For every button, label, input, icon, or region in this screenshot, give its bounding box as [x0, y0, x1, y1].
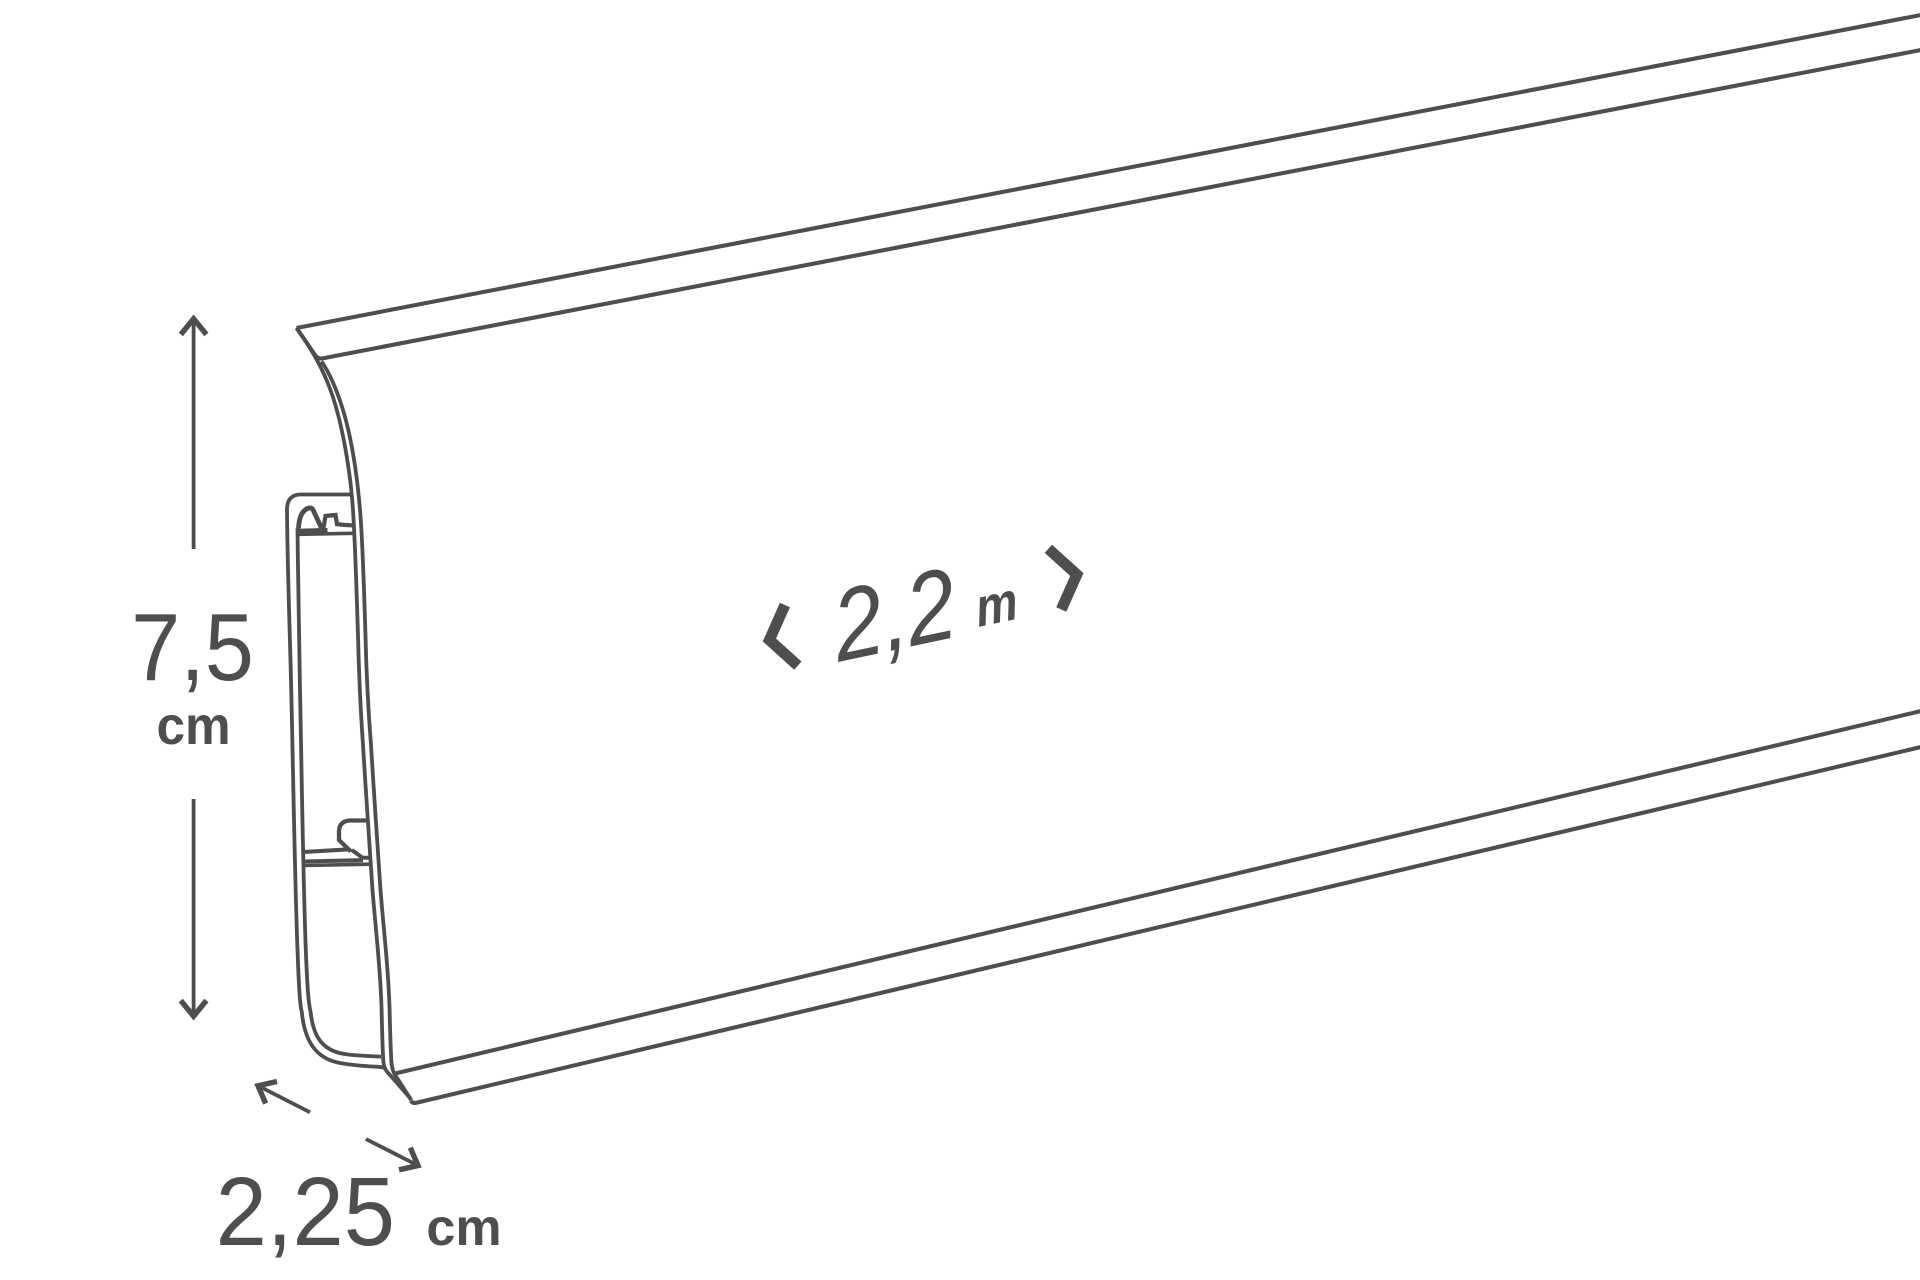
svg-text:m: m	[972, 570, 1022, 639]
svg-text:2,2: 2,2	[825, 547, 962, 684]
svg-text:cm: cm	[156, 696, 230, 756]
svg-text:cm: cm	[426, 1199, 501, 1257]
svg-text:2,25: 2,25	[216, 1158, 395, 1267]
svg-text:7,5: 7,5	[131, 594, 254, 701]
